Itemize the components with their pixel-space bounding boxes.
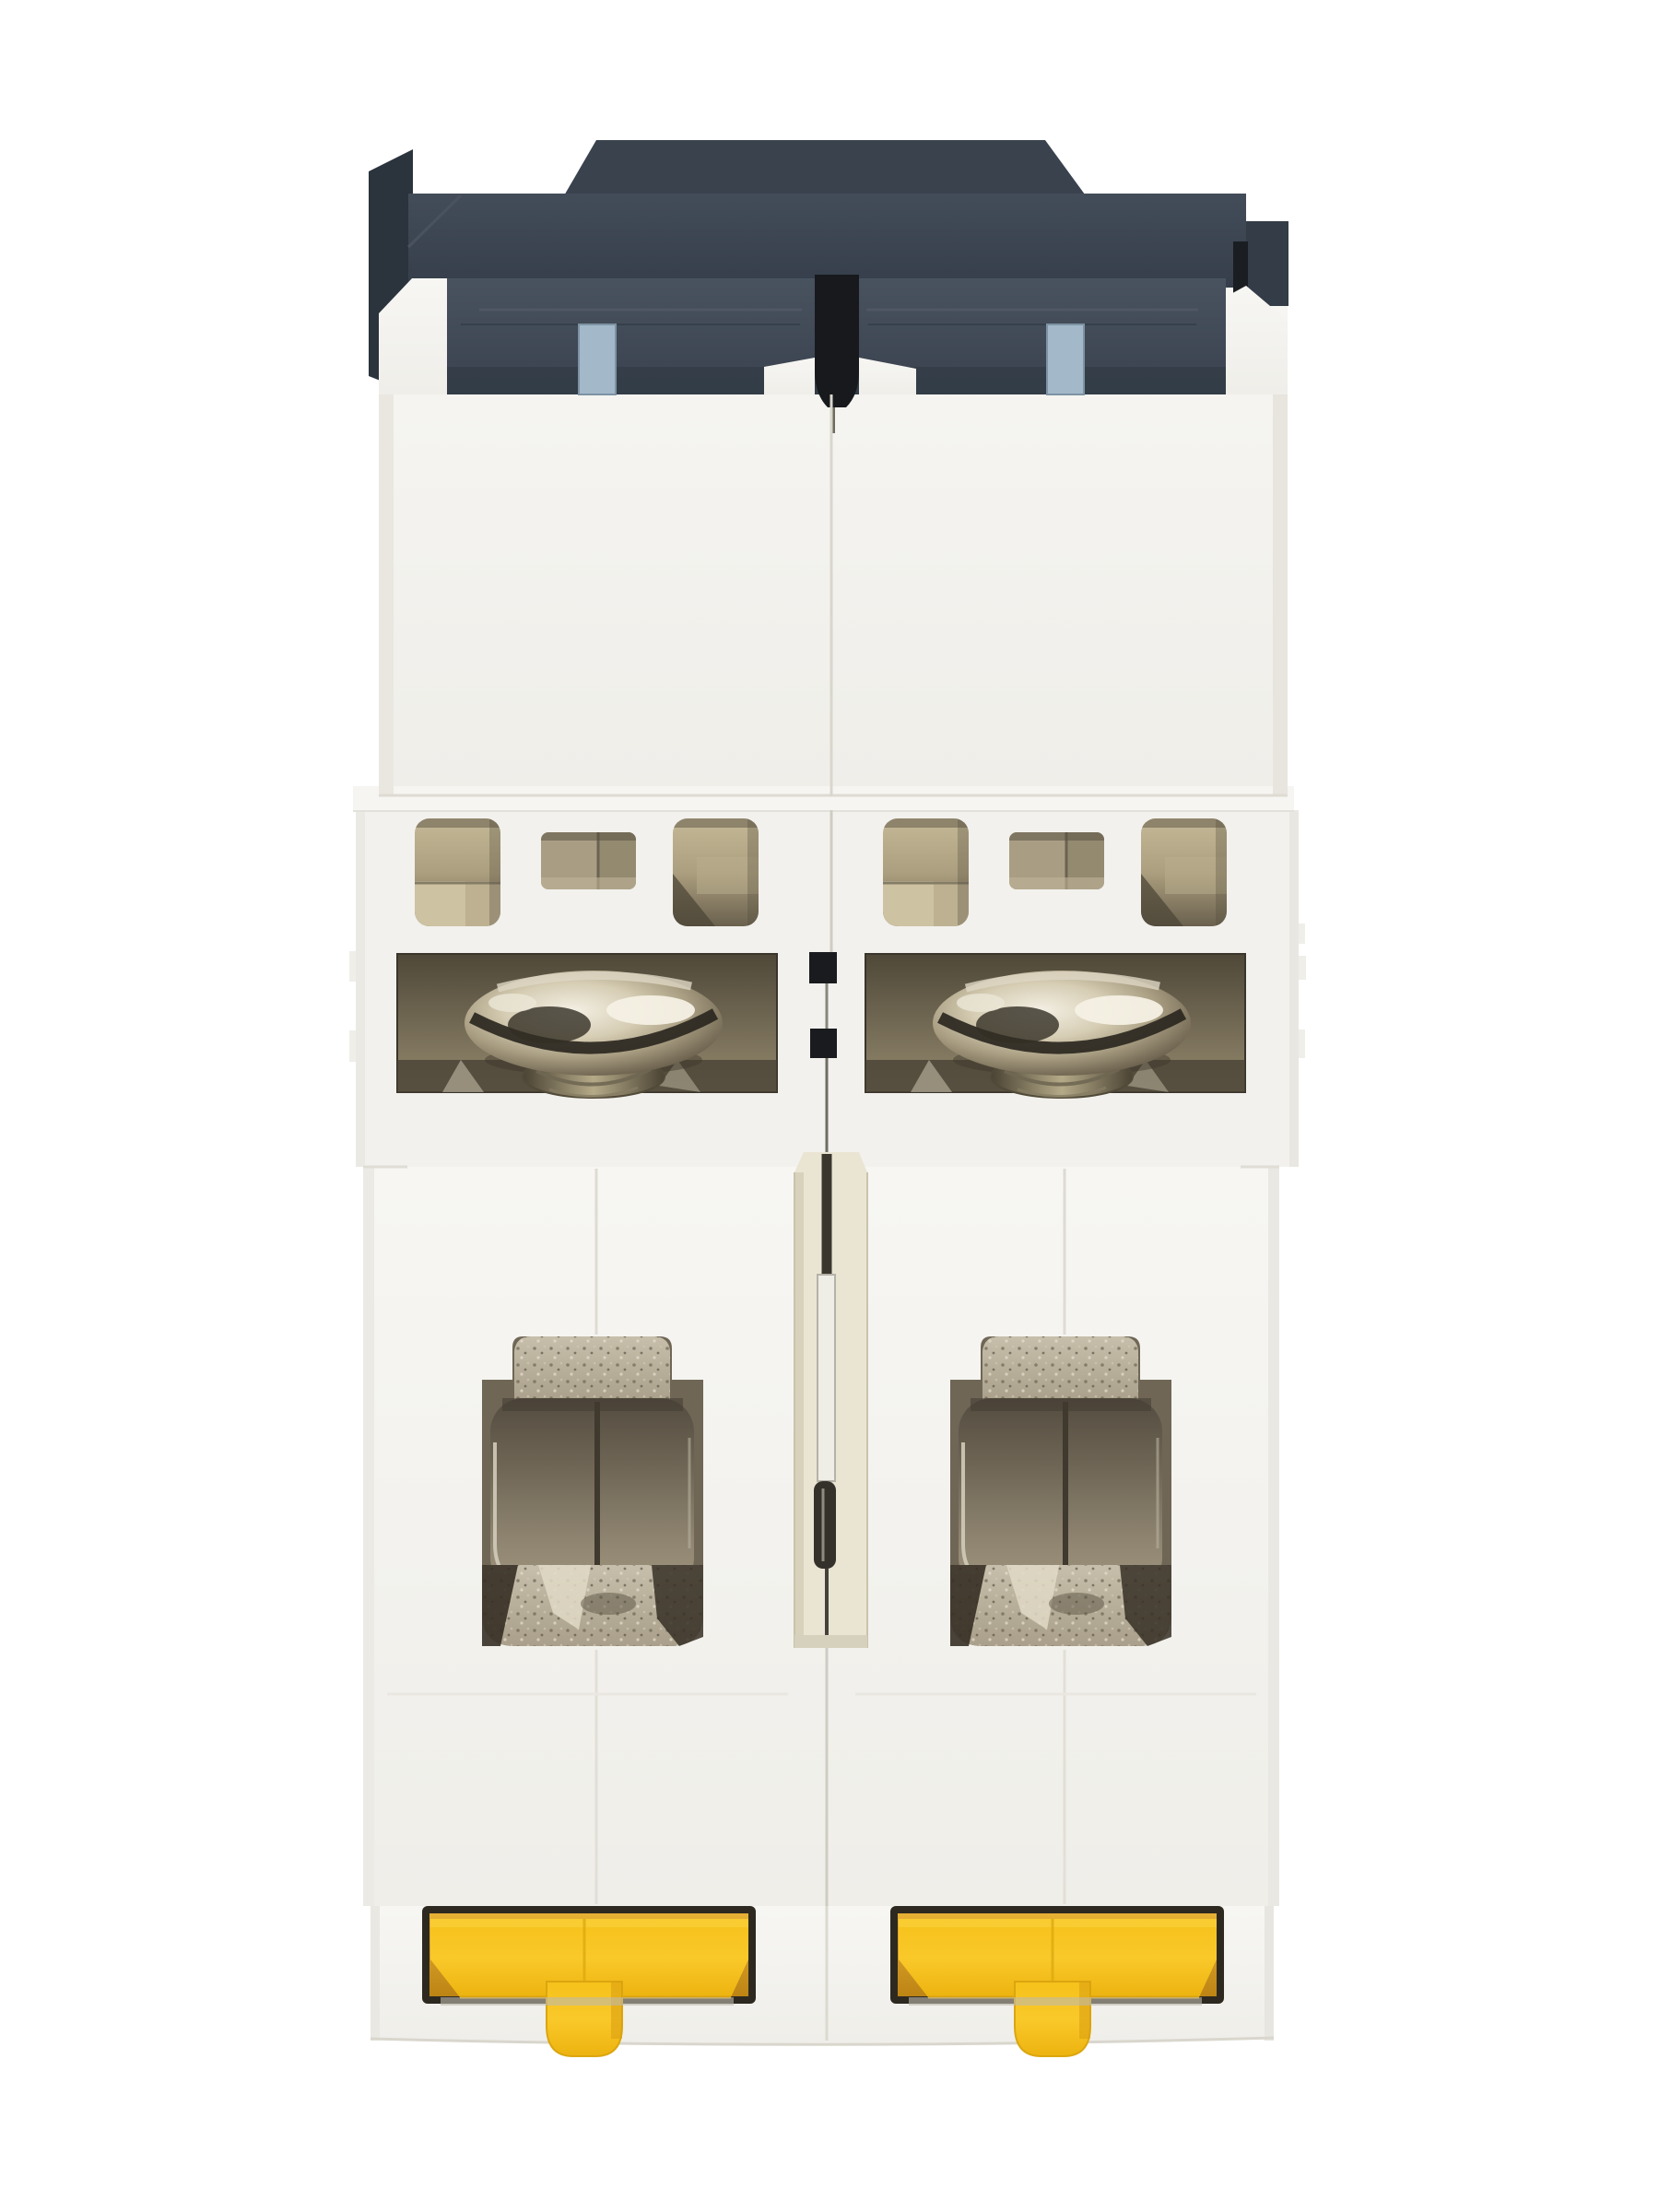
terminal-screw-assembly	[397, 954, 777, 1098]
latch-window-left	[579, 324, 616, 394]
housing-main-block	[408, 194, 1246, 288]
terminal-opening	[482, 1336, 703, 1646]
clip-pull-tab	[547, 1982, 622, 2056]
top-housing	[369, 140, 1288, 433]
vent-window-a	[415, 818, 500, 926]
product-photo: Bottom view of a white 2-pole DIN-rail m…	[0, 0, 1659, 2212]
center-slot	[815, 275, 859, 407]
rivet-pin-bulb	[814, 1481, 836, 1569]
vent-window-c	[673, 818, 759, 926]
circuit-breaker-bottom-view	[0, 0, 1659, 2212]
rivet-pin-shaft	[818, 1275, 835, 1481]
latch-window-right	[1047, 324, 1084, 394]
vent-band-lip	[353, 786, 1294, 812]
terminal-clamp	[490, 1398, 694, 1591]
vent-window-b	[541, 832, 636, 889]
